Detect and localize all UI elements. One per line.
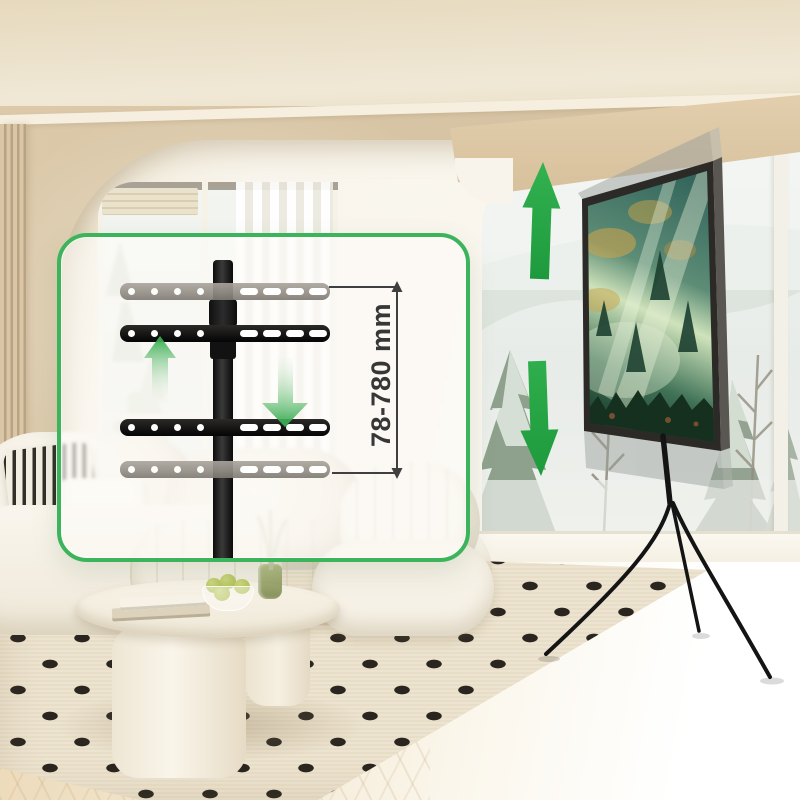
height-adjustment-inset-panel: 78-780 mm [57, 233, 470, 562]
down-arrow [518, 360, 560, 476]
panel-annotations [61, 237, 466, 558]
roller-shade [102, 188, 198, 215]
table-pedestal [112, 626, 246, 778]
up-arrow [144, 336, 176, 397]
tv [570, 157, 730, 451]
wood-slat-panel [0, 124, 26, 448]
down-arrow [262, 357, 308, 427]
tv-stand-illustration [470, 80, 800, 720]
height-range-label: 78-780 mm [366, 300, 396, 450]
up-arrow [520, 161, 562, 279]
living-room-scene: 78-780 mm [0, 0, 800, 800]
